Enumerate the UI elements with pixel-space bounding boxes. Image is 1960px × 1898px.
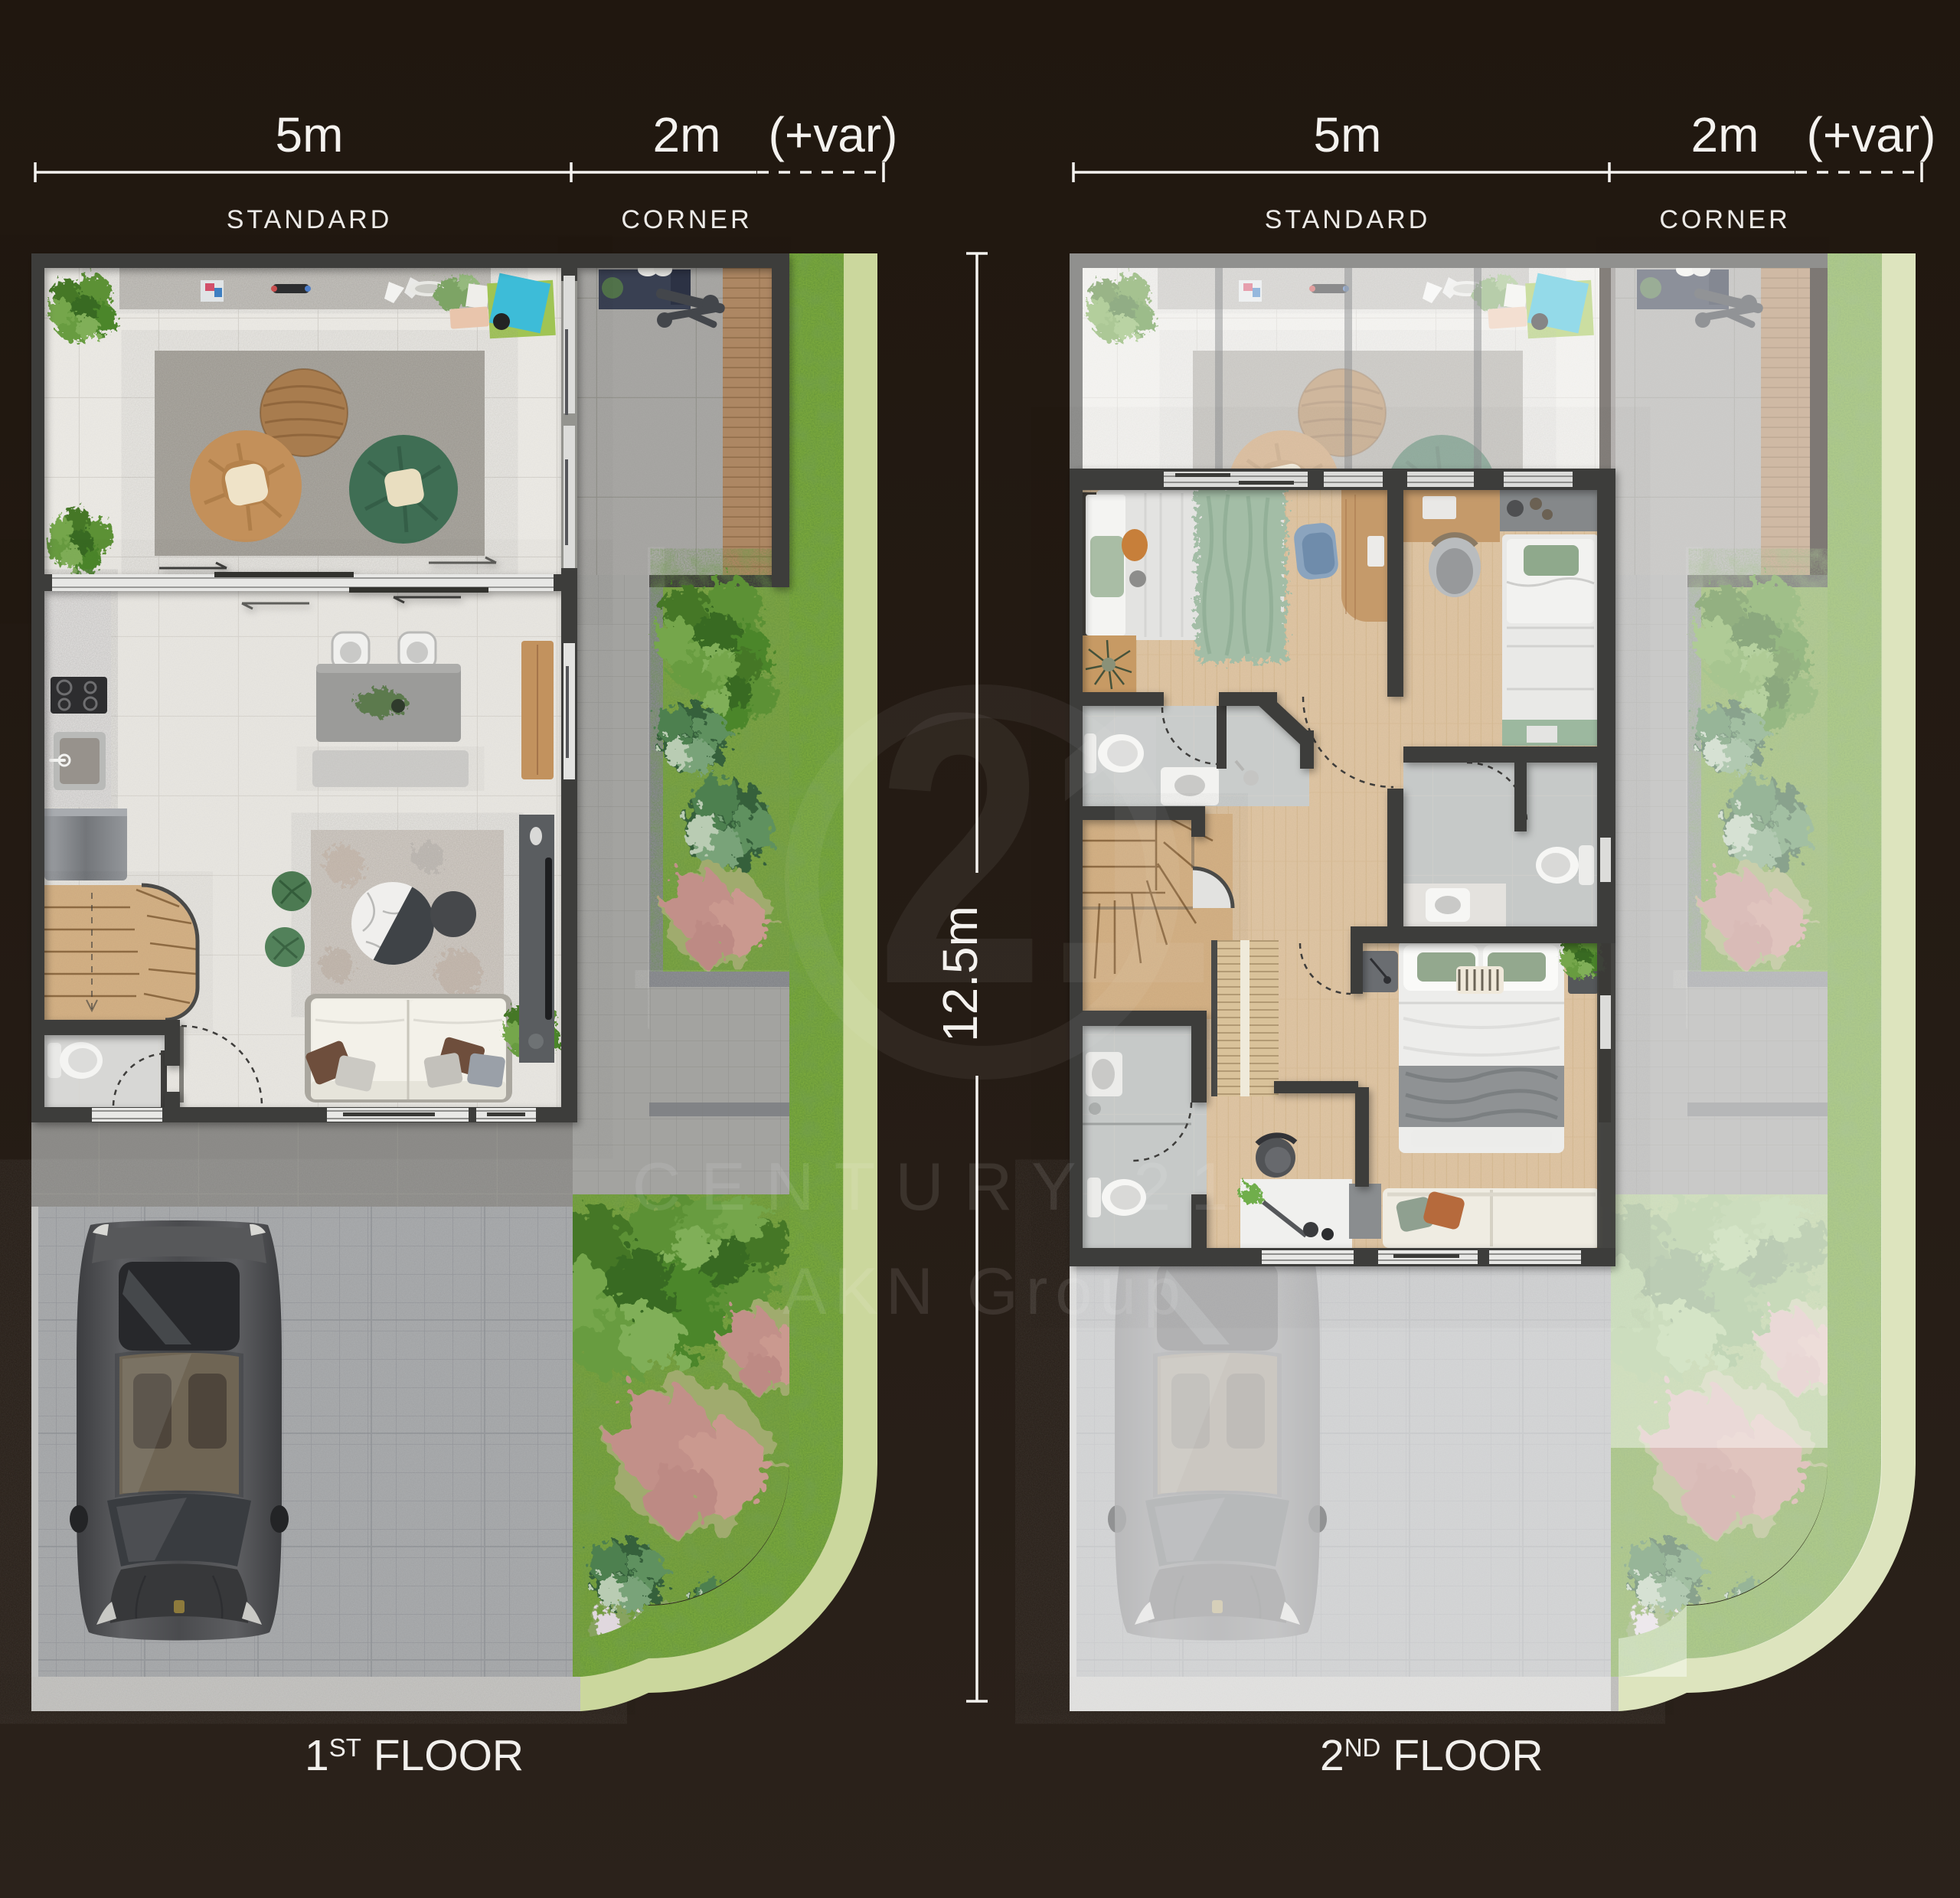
svg-text:STANDARD: STANDARD: [227, 205, 393, 234]
svg-text:2m: 2m: [653, 107, 721, 162]
svg-text:2m: 2m: [1691, 107, 1759, 162]
svg-text:5m: 5m: [276, 107, 344, 162]
svg-text:(+var): (+var): [1807, 107, 1936, 162]
svg-text:CORNER: CORNER: [1659, 205, 1790, 234]
svg-text:5m: 5m: [1314, 107, 1382, 162]
svg-text:(+var): (+var): [769, 107, 898, 162]
svg-text:CORNER: CORNER: [621, 205, 752, 234]
svg-text:21: 21: [877, 632, 1212, 1064]
svg-text:STANDARD: STANDARD: [1265, 205, 1431, 234]
svg-text:AKN Group: AKN Group: [782, 1255, 1188, 1328]
svg-text:CENTURY 21: CENTURY 21: [632, 1148, 1249, 1224]
